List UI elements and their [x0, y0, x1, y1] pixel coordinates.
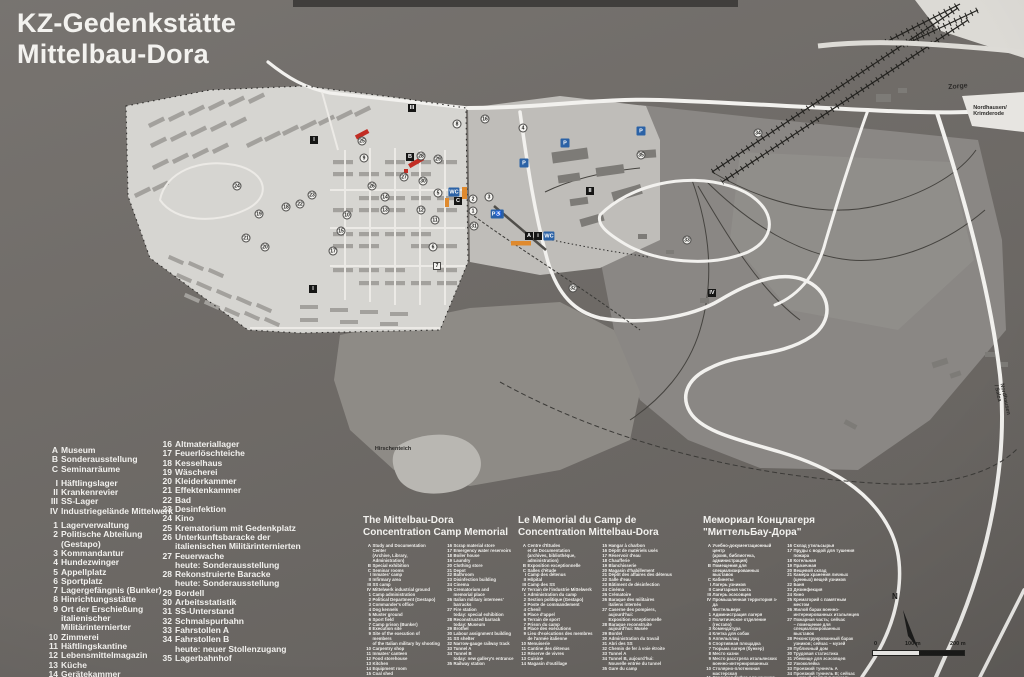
scale-labels: 0 100 m 200 m [872, 641, 972, 648]
legend-item-key: 35 [599, 667, 607, 672]
legend-item: BПомещения для специализированных выстав… [703, 564, 780, 579]
translation-column: AStudy and Documentation Center (Archive… [363, 544, 440, 676]
scale-label-0: 0 [874, 641, 877, 647]
translation-columns: AУчебно-документационный центр (архив, б… [703, 544, 861, 677]
legend-item-label: Site of the execution of members of the … [373, 632, 441, 647]
legend-item-key: 35 [444, 662, 452, 667]
translation-column: 16Склад утильсырья17Пруды с водой для ту… [784, 544, 861, 677]
legend-item-key: B [703, 564, 711, 579]
legend-item: 27Пожарная часть; сейчас – помещение для… [784, 618, 861, 638]
scale-bar-graphic [872, 650, 965, 656]
translation-block-fr: Le Memorial du Camp de Concentration Mit… [518, 515, 676, 672]
legend-item-key: 27 [784, 618, 792, 638]
legend-item-key: A [518, 544, 526, 564]
translation-block-en: The Mittelbau-Dora Concentration Camp Me… [363, 515, 521, 676]
legend-item-label: Пожарная часть; сейчас – помещение для с… [794, 618, 862, 638]
legend-item: 14Magasin d'outillage [518, 662, 595, 667]
legend-item-key: IV [703, 598, 711, 613]
legend-item-key: 34 [784, 672, 792, 677]
legend-item-label: Проезжий туннель В; сейчас – новый досту… [794, 672, 856, 677]
legend-item: ACentre d'Études et de Documentation (ar… [518, 544, 595, 564]
translation-title: The Mittelbau-Dora Concentration Camp Me… [363, 515, 521, 538]
scale-bar: 0 100 m 200 m [872, 641, 972, 656]
legend-item-label: Caserne des pompiers, aujourd'hui: Expos… [609, 608, 677, 623]
legend-item: 35Gare du camp [599, 667, 676, 672]
scale-segment-white [873, 651, 919, 655]
translations-section: The Mittelbau-Dora Concentration Camp Me… [0, 0, 1024, 677]
translation-column: 15Hangar à charbon16Dépôt de matériels u… [599, 544, 676, 672]
legend-item-label: Study and Documentation Center (Archive,… [373, 544, 441, 564]
translation-block-ru: Мемориал Концлагеря "МиттельБау-Дора"AУч… [703, 515, 861, 677]
legend-item-key: A [703, 544, 711, 564]
legend-item: AУчебно-документационный центр (архив, б… [703, 544, 780, 564]
legend-item-key: 15 [363, 672, 371, 677]
translation-column: AУчебно-документационный центр (архив, б… [703, 544, 780, 677]
scale-label-100m: 100 m [905, 641, 921, 647]
legend-item-key: 9 [363, 632, 371, 647]
translation-column: ACentre d'Études et de Documentation (ar… [518, 544, 595, 672]
legend-item-key: 14 [518, 662, 526, 667]
legend-item-key: 27 [599, 608, 607, 623]
translation-columns: AStudy and Documentation Center (Archive… [363, 544, 521, 676]
legend-item-label: Magasin d'outillage [528, 662, 568, 667]
legend-item-label: Gare du camp [609, 667, 638, 672]
translation-column: 16Scrap material store17Emergency water … [444, 544, 521, 676]
legend-item: 27Caserne des pompiers, aujourd'hui: Exp… [599, 608, 676, 623]
legend-item-label: Учебно-документационный центр (архив, би… [713, 544, 781, 564]
memorial-map-board: KZ-Gedenkstätte Mittelbau-Dora 259282730… [0, 0, 1024, 677]
legend-item-label: Coal shed [373, 672, 394, 677]
legend-item-label: Помещения для специализированных выставо… [713, 564, 781, 579]
translation-columns: ACentre d'Études et de Documentation (ar… [518, 544, 676, 672]
legend-item: AStudy and Documentation Center (Archive… [363, 544, 440, 564]
legend-item-label: Промышленная территория з-да Миттельверк [713, 598, 781, 613]
legend-item: 9Site of the execution of members of the… [363, 632, 440, 647]
legend-item-label: Railway station [454, 662, 485, 667]
scale-segment-black [919, 651, 965, 655]
legend-item-key: A [363, 544, 371, 564]
legend-item: IVПромышленная территория з-да Миттельве… [703, 598, 780, 613]
scale-label-200m: 200 m [950, 641, 966, 647]
legend-item: 34Проезжий туннель В; сейчас – новый дос… [784, 672, 861, 677]
translation-title: Le Memorial du Camp de Concentration Mit… [518, 515, 676, 538]
translation-title: Мемориал Концлагеря "МиттельБау-Дора" [703, 515, 861, 538]
compass-north: N [892, 592, 898, 601]
legend-item: 35Railway station [444, 662, 521, 667]
legend-item: 15Coal shed [363, 672, 440, 677]
legend-item-label: Centre d'Études et de Documentation (arc… [528, 544, 596, 564]
